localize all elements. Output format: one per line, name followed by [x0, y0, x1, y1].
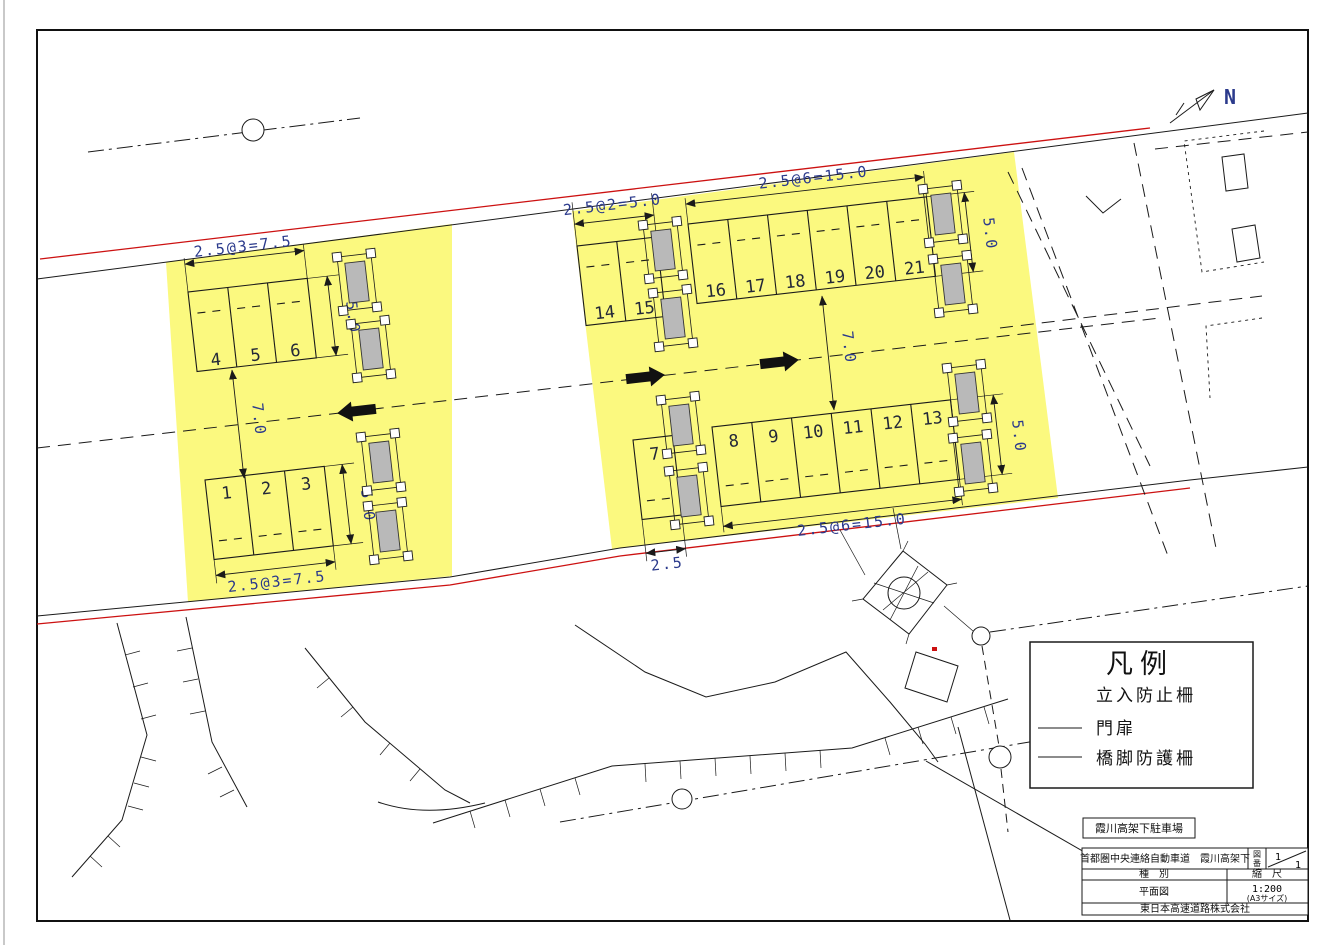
road-edge-north-dashed	[1155, 132, 1308, 149]
title-block: 首都圏中央連絡自動車道 霞川高架下 図 番 1 1 種 別 縮 尺 平面図 1:…	[1080, 848, 1308, 915]
parking-area-east	[572, 152, 1058, 549]
sheet-number-top: 1	[1275, 852, 1281, 863]
boundary-dashed-4	[1000, 296, 1262, 328]
drawing-sheet: N 4 5 6 2.5@3=7.5 5.0 1 2 3 5.0 2.5@3=7.…	[0, 0, 1341, 945]
access-road-south	[575, 625, 938, 762]
boundary-centerline-east	[990, 586, 1308, 632]
boundary-check-mark	[1086, 196, 1121, 213]
stall-number: 10	[802, 421, 825, 443]
fence-red-mark	[932, 647, 937, 651]
boundary-dashed-3	[1134, 143, 1216, 548]
stall-number: 11	[842, 417, 865, 439]
stall-number: 16	[704, 280, 727, 302]
dotted-parcel-upper	[1184, 131, 1264, 272]
legend: 凡例 立入防止柵 門扉 橋脚防護柵	[1030, 642, 1253, 788]
building-outline-1	[1222, 154, 1248, 191]
utility-pole-symbol	[242, 119, 264, 141]
stall-number: 20	[863, 262, 886, 284]
legend-title: 凡例	[1106, 649, 1174, 680]
utility-pole-symbol-south	[672, 789, 692, 809]
boundary-dashed-5	[982, 646, 999, 746]
title-type-value: 平面図	[1139, 886, 1169, 898]
parking-area-west	[166, 224, 452, 602]
dim-bay-depth: 5.0	[1008, 419, 1030, 454]
embankment-south	[433, 699, 1008, 828]
boundary-pole-1	[972, 627, 990, 645]
dim-road-width-east: 7.0	[838, 330, 859, 365]
structure-outline	[905, 652, 958, 702]
legend-item-label: 橋脚防護柵	[1096, 749, 1196, 769]
site-stamp: 霞川高架下駐車場	[1083, 818, 1195, 838]
sheet-label-char: 番	[1253, 858, 1261, 868]
boundary-pole-2	[989, 746, 1011, 768]
dim-bay-depth: 5.0	[979, 216, 1001, 251]
north-label: N	[1224, 85, 1236, 109]
sheet-label-char: 図	[1253, 850, 1261, 859]
dim-single-bay: 2.5	[650, 553, 685, 575]
stall-number: 19	[824, 267, 847, 289]
building-outline-2	[1232, 225, 1260, 262]
site-stamp-label: 霞川高架下駐車場	[1095, 821, 1183, 835]
title-type-label: 種 別	[1139, 867, 1169, 880]
north-arrow: N	[1170, 85, 1236, 123]
title-scale-label: 縮 尺	[1252, 867, 1282, 880]
north-arrow-flag	[1196, 90, 1214, 110]
dotted-parcel-lower	[1206, 318, 1262, 398]
title-company: 東日本高速道路株式会社	[1140, 902, 1250, 915]
boundary-link	[944, 606, 973, 631]
utility-line-northwest	[88, 118, 360, 152]
dim-road-width-west: 7.0	[248, 402, 269, 437]
stall-number: 14	[593, 302, 616, 324]
sheet-number-bottom: 1	[1295, 860, 1301, 871]
title-scale-size: (A3サイズ)	[1247, 893, 1288, 903]
stall-number: 21	[903, 258, 926, 280]
stall-number: 13	[921, 408, 944, 430]
title-project: 首都圏中央連絡自動車道 霞川高架下	[1080, 852, 1250, 865]
embankment-west	[72, 617, 485, 877]
stall-number: 15	[633, 298, 656, 320]
boundary-dashed-6	[1001, 769, 1008, 832]
stall-number: 12	[881, 412, 904, 434]
stall-number: 18	[784, 271, 807, 293]
stall-number: 17	[744, 276, 767, 298]
site-plan-canvas: N 4 5 6 2.5@3=7.5 5.0 1 2 3 5.0 2.5@3=7.…	[0, 0, 1341, 945]
legend-item-label: 門扉	[1096, 719, 1136, 739]
legend-item-label: 立入防止柵	[1096, 686, 1196, 706]
